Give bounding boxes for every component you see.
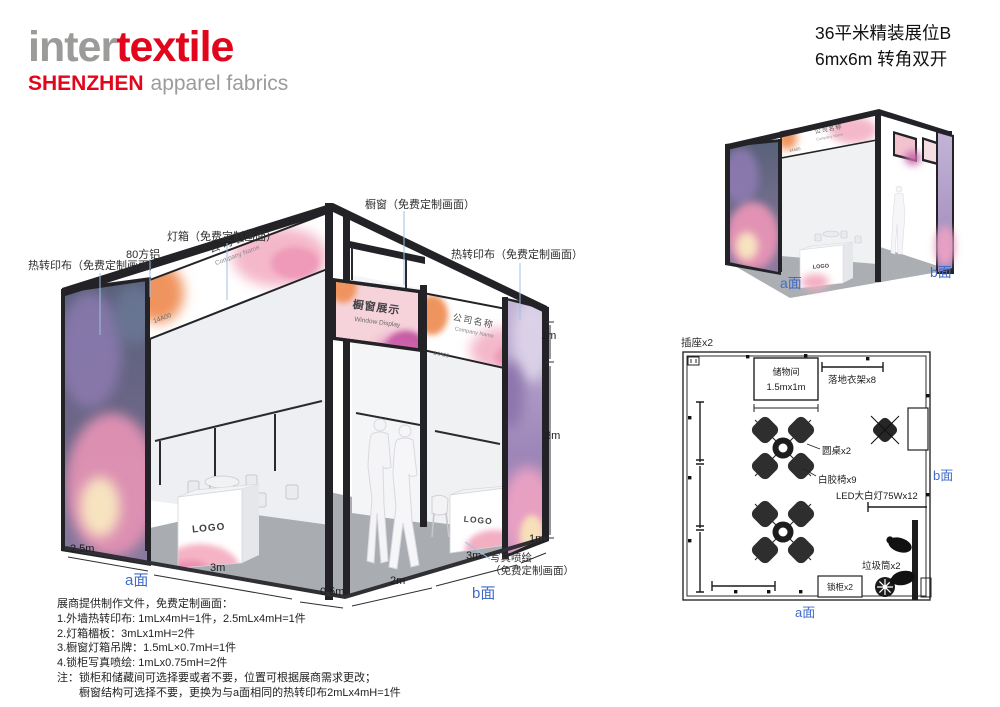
callout-inkjet-label: 写真喷绘 （免费定制画面） <box>490 552 574 577</box>
dim-fascia-height: 1m <box>541 330 556 342</box>
floorplan-side-b-label: b面 <box>933 465 953 484</box>
locker-box: 锁柜x2 <box>818 576 862 597</box>
notes-note-1: 注：锁柜和储藏间可选择要或者不要，位置可根据展商需求更改； <box>57 671 507 686</box>
booth-spec-sheet: { "colors":{"brand_red":"#e2061c","logo_… <box>0 0 1000 707</box>
callout-lightbox-label: 灯箱（免费定制画面） <box>167 228 277 244</box>
locker-label: 锁柜x2 <box>827 582 853 592</box>
inner-wall <box>912 520 918 600</box>
callout-inkjet-line2: （免费定制画面） <box>490 565 574 578</box>
small-right-graphic-panel <box>935 131 955 274</box>
title-line-2: 6mx6m 转角双开 <box>815 46 951 72</box>
small-logo-text: LOGO <box>813 263 830 270</box>
side-table <box>908 408 928 450</box>
table-label: 圆桌x2 <box>822 445 851 457</box>
notes-note-2: 橱窗结构可选择不要，更换为与a面相同的热转印布2mLx4mH=1件 <box>57 686 507 701</box>
chair-label: 白胶椅x9 <box>818 474 857 486</box>
small-window-signs <box>893 131 941 166</box>
floorplan-side-a-label: a面 <box>795 602 815 621</box>
storage-size: 1.5mx1m <box>766 382 805 393</box>
logo-word-inter: inter <box>28 23 116 71</box>
notes-item-4: 4.锁柜写真喷绘: 1mLx0.75mH=2件 <box>57 656 507 671</box>
page-title: 36平米精装展位B 6mx6m 转角双开 <box>815 20 951 72</box>
small-side-a-label: a面 <box>780 273 802 293</box>
floor-plan: 储物间 1.5mx1m <box>676 333 966 618</box>
left-graphic-panel <box>58 281 158 562</box>
callout-inkjet-line1: 写真喷绘 <box>490 552 574 565</box>
trash-label: 垃圾筒x2 <box>862 560 901 572</box>
logo-city: SHENZHEN <box>28 72 144 95</box>
logo-word-textile: textile <box>116 23 233 71</box>
main-side-a-label: a面 <box>125 569 148 590</box>
led-label: LED大白灯75Wx12 <box>836 490 918 502</box>
intertextile-logo: intertextile SHENZHENapparel fabrics <box>28 24 288 96</box>
notes-item-1: 1.外墙热转印布: 1mLx4mH=1件，2.5mLx4mH=1件 <box>57 612 507 627</box>
dim-left-width: 3m <box>210 562 225 574</box>
socket-icon <box>688 357 699 365</box>
small-left-graphic-panel <box>723 139 781 275</box>
rack-label: 落地衣架x8 <box>828 374 876 386</box>
storage-room: 储物间 1.5mx1m <box>754 358 818 412</box>
storage-name: 储物间 <box>772 366 799 377</box>
callout-window-label: 橱窗（免费定制画面） <box>365 196 475 212</box>
small-mannequin-icon <box>891 186 905 254</box>
dim-right-depth: 3m <box>466 550 481 562</box>
small-side-b-label: b面 <box>930 262 952 282</box>
production-notes: 展商提供制作文件，免费定制画面： 1.外墙热转印布: 1mLx4mH=1件，2.… <box>57 597 507 701</box>
dim-wall-height: 3m <box>545 430 560 442</box>
logo-tagline: apparel fabrics <box>151 72 289 95</box>
notes-item-3: 3.橱窗灯箱吊牌：1.5mL×0.7mH=1件 <box>57 641 507 656</box>
title-line-1: 36平米精装展位B <box>815 20 951 46</box>
round-table-icon <box>749 414 816 565</box>
callout-aluminum-label: 80方铝 <box>126 246 160 262</box>
dim-right-end: 1m <box>529 533 544 545</box>
dim-right-width: 2m <box>390 575 405 587</box>
notes-title: 展商提供制作文件，免费定制画面： <box>57 597 507 612</box>
callout-right-fabric-label: 热转印布（免费定制画面） <box>451 246 583 262</box>
dim-left-depth: 2.5m <box>70 543 94 555</box>
notes-item-2: 2.灯箱楣板：3mLx1mH=2件 <box>57 627 507 642</box>
chair-icon <box>871 416 899 444</box>
